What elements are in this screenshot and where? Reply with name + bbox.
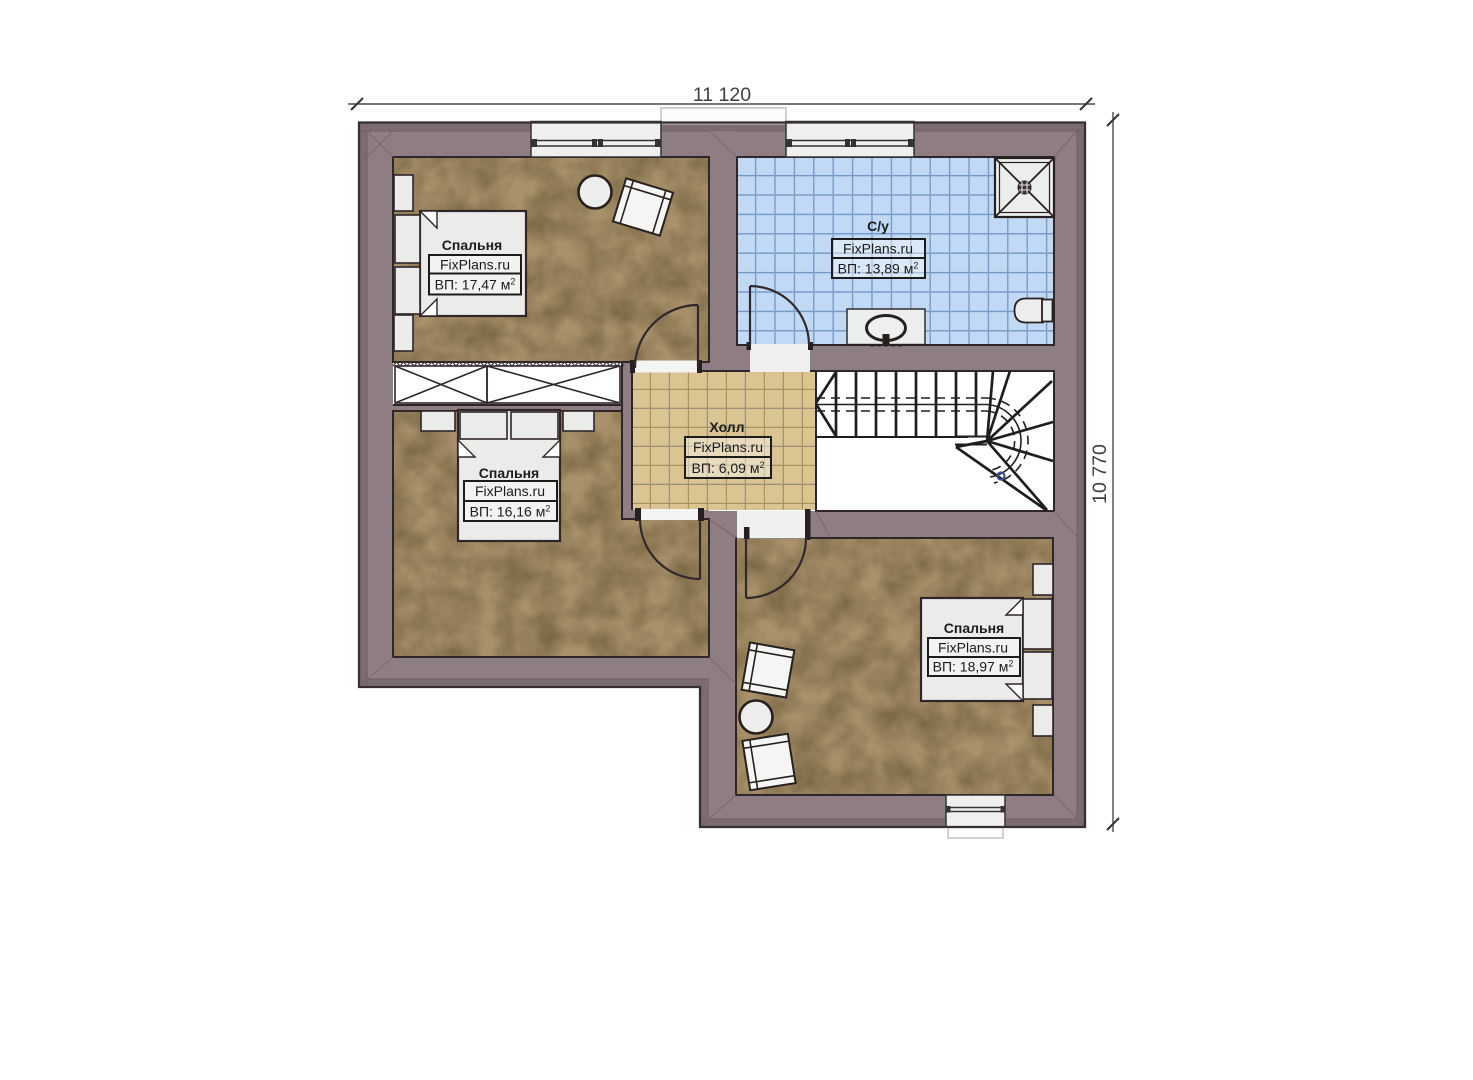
svg-text:FixPlans.ru: FixPlans.ru xyxy=(475,483,545,499)
svg-text:Холл: Холл xyxy=(709,419,744,435)
svg-text:С/у: С/у xyxy=(867,218,889,234)
svg-text:ВП: 17,47 м2: ВП: 17,47 м2 xyxy=(435,277,516,293)
svg-text:Спальня: Спальня xyxy=(944,620,1004,636)
svg-text:10 770: 10 770 xyxy=(1089,444,1111,504)
svg-text:Спальня: Спальня xyxy=(479,465,539,481)
svg-text:FixPlans.ru: FixPlans.ru xyxy=(440,257,510,273)
svg-text:FixPlans.ru: FixPlans.ru xyxy=(693,439,763,455)
svg-text:ВП: 6,09 м2: ВП: 6,09 м2 xyxy=(692,460,765,476)
svg-text:FixPlans.ru: FixPlans.ru xyxy=(843,241,913,257)
svg-text:ВП: 18,97 м2: ВП: 18,97 м2 xyxy=(933,659,1014,675)
svg-text:ВП: 16,16 м2: ВП: 16,16 м2 xyxy=(470,504,551,520)
svg-text:Спальня: Спальня xyxy=(442,237,502,253)
svg-text:11 120: 11 120 xyxy=(693,84,751,106)
svg-text:FixPlans.ru: FixPlans.ru xyxy=(938,640,1008,656)
svg-text:ВП: 13,89 м2: ВП: 13,89 м2 xyxy=(838,261,919,277)
